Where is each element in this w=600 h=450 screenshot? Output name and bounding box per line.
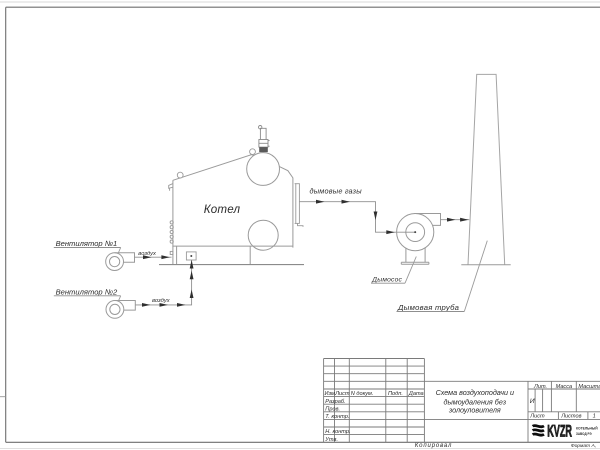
svg-text:Дымосос: Дымосос	[371, 277, 402, 284]
svg-text:Масштаб: Масштаб	[578, 384, 600, 390]
svg-text:воздух: воздух	[138, 251, 157, 257]
svg-text:ЗАВОД РЭ: ЗАВОД РЭ	[576, 432, 592, 436]
svg-text:N докум.: N докум.	[351, 391, 374, 397]
svg-text:Лит.: Лит.	[533, 384, 547, 390]
svg-text:дымовые газы: дымовые газы	[310, 187, 363, 196]
svg-text:Н. контр.: Н. контр.	[325, 429, 350, 435]
svg-text:И: И	[530, 398, 535, 405]
svg-text:Пров.: Пров.	[325, 406, 340, 412]
svg-text:1: 1	[593, 414, 596, 420]
svg-text:Лист: Лист	[529, 414, 545, 420]
svg-text:КОТЕЛЬНЫЙ: КОТЕЛЬНЫЙ	[576, 427, 598, 431]
svg-text:Лист: Лист	[334, 391, 350, 397]
svg-text:Масса: Масса	[556, 384, 573, 390]
svg-text:Дата: Дата	[408, 391, 424, 397]
svg-text:золоуловителя: золоуловителя	[448, 405, 501, 414]
svg-text:KVZR: KVZR	[547, 421, 572, 440]
svg-text:Разраб.: Разраб.	[325, 399, 345, 405]
svg-text:Утв.: Утв.	[324, 437, 338, 443]
svg-text:Вентилятор №1: Вентилятор №1	[56, 239, 118, 248]
svg-text:Копировал: Копировал	[415, 443, 453, 449]
svg-text:Подп.: Подп.	[388, 391, 403, 397]
svg-text:Дымовая труба: Дымовая труба	[397, 303, 460, 312]
svg-text:Схема воздухоподачи и: Схема воздухоподачи и	[436, 388, 514, 397]
svg-text:Котел: Котел	[204, 203, 241, 216]
svg-text:Листов: Листов	[560, 414, 581, 420]
svg-text:Т. контр.: Т. контр.	[325, 414, 349, 420]
svg-text:Вентилятор №2: Вентилятор №2	[56, 288, 118, 297]
svg-text:воздух: воздух	[152, 298, 171, 304]
svg-text:Формат А,: Формат А,	[571, 443, 596, 449]
